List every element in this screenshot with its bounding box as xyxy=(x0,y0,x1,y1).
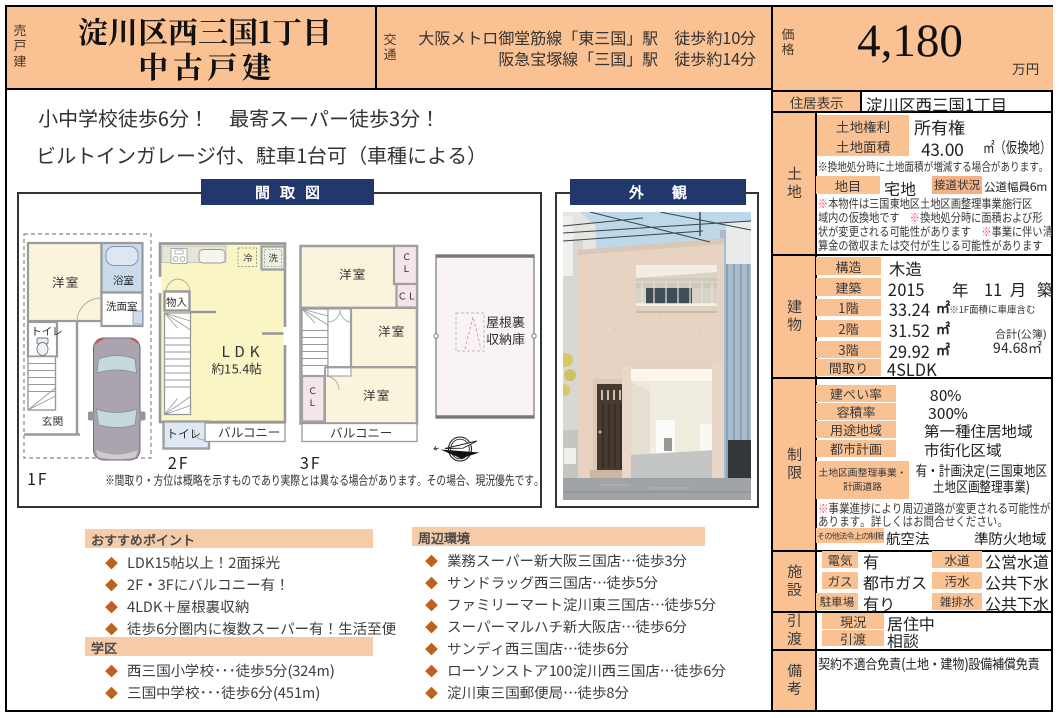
svg-text:玄関: 玄関 xyxy=(42,414,63,429)
svg-text:冷: 冷 xyxy=(243,251,253,265)
svg-text:洋室: 洋室 xyxy=(339,264,366,283)
svg-text:洗面室: 洗面室 xyxy=(106,299,138,314)
svg-text:洋室: 洋室 xyxy=(52,272,79,291)
svg-text:バルコニー: バルコニー xyxy=(218,422,281,441)
svg-text:洗: 洗 xyxy=(269,251,279,265)
svg-text:Ｌ: Ｌ xyxy=(308,396,317,409)
svg-text:浴室: 浴室 xyxy=(113,273,134,288)
svg-text:ＣＬ: ＣＬ xyxy=(398,289,417,303)
svg-text:トイレ: トイレ xyxy=(167,426,202,442)
svg-text:トイレ: トイレ xyxy=(31,324,63,339)
svg-text:約15.4帖: 約15.4帖 xyxy=(212,359,263,378)
svg-text:Ｌ: Ｌ xyxy=(402,262,411,275)
svg-text:洋室: 洋室 xyxy=(363,385,390,404)
svg-text:物入: 物入 xyxy=(166,295,187,310)
svg-text:収納庫: 収納庫 xyxy=(486,329,525,348)
svg-text:バルコニー: バルコニー xyxy=(330,423,393,442)
svg-text:洋室: 洋室 xyxy=(378,321,405,340)
